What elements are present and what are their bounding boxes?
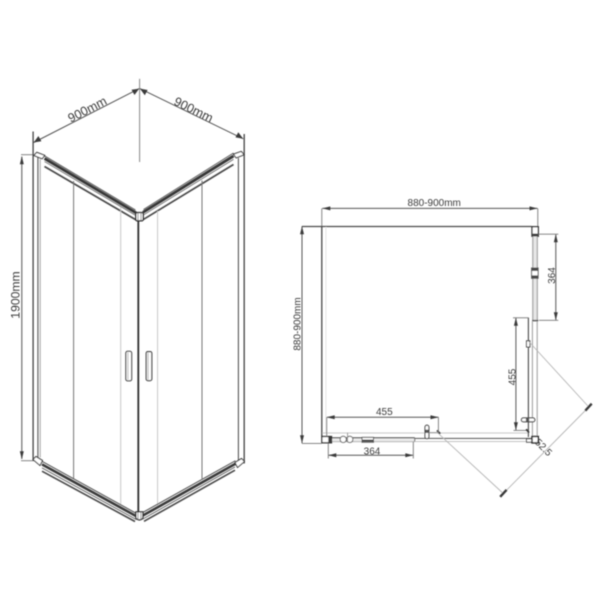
svg-text:455: 455 <box>507 368 518 385</box>
svg-text:880-900mm: 880-900mm <box>408 198 461 209</box>
svg-text:364: 364 <box>364 446 381 457</box>
svg-text:364: 364 <box>547 267 558 284</box>
svg-text:455: 455 <box>376 407 393 418</box>
svg-text:880-900mm: 880-900mm <box>293 297 304 350</box>
svg-text:1900mm: 1900mm <box>9 271 23 318</box>
